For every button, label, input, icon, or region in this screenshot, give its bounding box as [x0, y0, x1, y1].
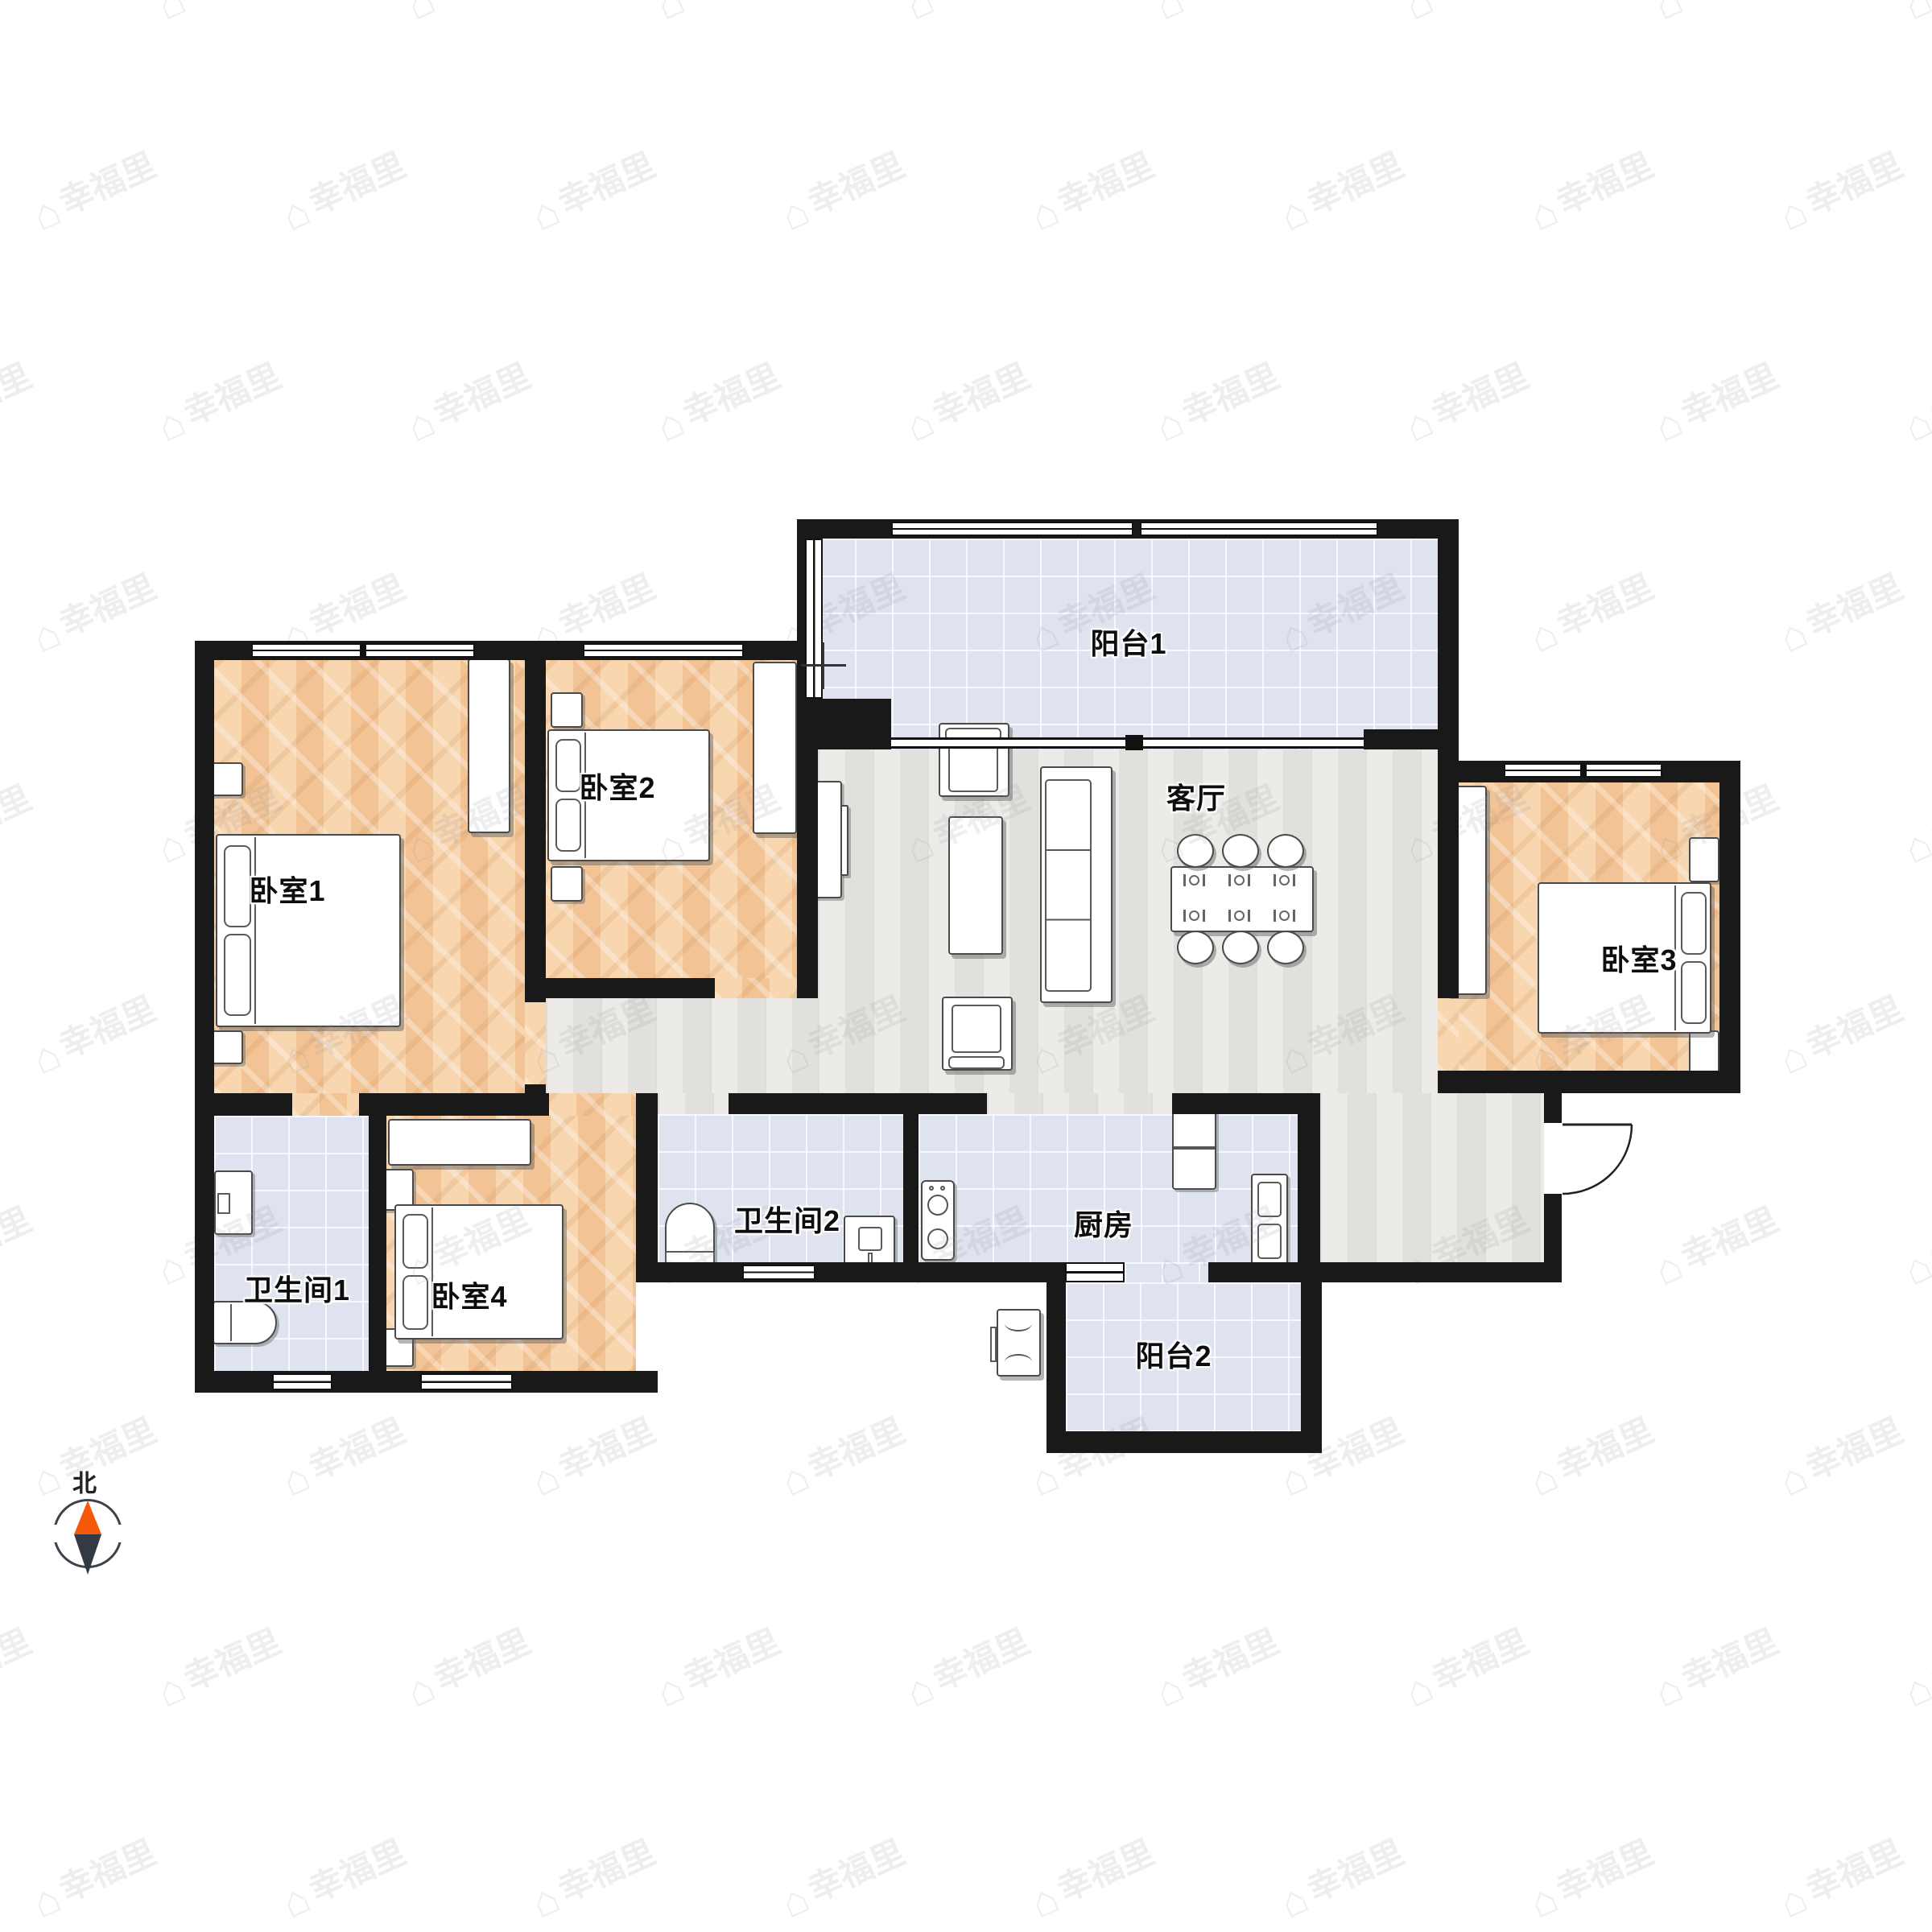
house-icon: ⌂ — [151, 1664, 192, 1717]
house-icon: ⌂ — [1149, 0, 1191, 29]
compass: 北 — [32, 1463, 145, 1584]
watermark-item: ⌂幸福里 — [1021, 1826, 1163, 1929]
compass-needle-north — [74, 1501, 101, 1534]
pillow — [1681, 961, 1707, 1024]
house-icon: ⌂ — [525, 1453, 567, 1506]
place-setting — [1228, 874, 1250, 886]
bedroom4-wardrobe — [388, 1119, 531, 1166]
bathroom1-door-threshold — [292, 1093, 359, 1116]
pillow — [555, 799, 581, 852]
watermark-item: ⌂幸福里 — [0, 1615, 40, 1718]
balcony2-door-threshold — [1125, 1262, 1208, 1282]
watermark-item: ⌂幸福里 — [23, 1826, 165, 1929]
watermark-item: ⌂幸福里 — [147, 349, 290, 452]
house-icon: ⌂ — [1274, 188, 1315, 241]
wall-bath2-kitchen-divider — [903, 1114, 919, 1262]
hall-west-floor — [546, 998, 818, 1093]
watermark-item: ⌂幸福里 — [1645, 1615, 1787, 1718]
sink-basin — [858, 1227, 882, 1251]
wall-kitchen-top-east — [1172, 1093, 1320, 1114]
room-label-balcony1: 阳台1 — [1090, 621, 1166, 663]
house-icon: ⌂ — [400, 0, 442, 29]
bedroom4-door-threshold — [549, 1093, 642, 1116]
house-icon: ⌂ — [1398, 398, 1440, 452]
watermark-item: ⌂幸福里 — [1395, 0, 1538, 30]
watermark-item: ⌂幸福里 — [646, 1615, 789, 1718]
watermark-item: ⌂幸福里 — [771, 1826, 914, 1929]
wall-outer-left — [195, 641, 214, 1393]
watermark-item: ⌂幸福里 — [1270, 138, 1413, 242]
house-icon: ⌂ — [275, 188, 317, 241]
dining-chair — [1222, 931, 1259, 964]
kitchen-balcony2-window — [1065, 1262, 1125, 1282]
place-setting — [1183, 910, 1205, 922]
bedroom3-window — [1504, 763, 1662, 778]
house-icon: ⌂ — [774, 188, 816, 241]
watermark-item: ⌂幸福里 — [646, 349, 789, 452]
house-icon: ⌂ — [1648, 1664, 1690, 1717]
stove-knob — [940, 1186, 945, 1191]
watermark-item: ⌂幸福里 — [771, 1404, 914, 1507]
stove-burner — [927, 1228, 948, 1249]
watermark-item: ⌂幸福里 — [1270, 1826, 1413, 1929]
bathroom1-sink — [214, 1170, 253, 1235]
house-icon: ⌂ — [1523, 1875, 1565, 1928]
dining-chair — [1222, 834, 1259, 868]
kitchen-fridge — [1172, 1106, 1216, 1190]
watermark-item: ⌂幸福里 — [147, 1615, 290, 1718]
bedroom2-nightstand-bottom — [551, 866, 583, 902]
sofa — [1040, 766, 1113, 1003]
watermark-item: ⌂幸福里 — [1769, 560, 1912, 663]
watermark-item: ⌂幸福里 — [1395, 1615, 1538, 1718]
watermark-item: ⌂幸福里 — [1769, 1826, 1912, 1929]
wall-balcony2-bottom — [1046, 1431, 1322, 1453]
wall-south-hall — [1301, 1262, 1562, 1282]
bedroom2-wardrobe — [753, 662, 797, 834]
toilet-tank-line — [230, 1304, 232, 1341]
bedroom1-nightstand-bottom — [209, 1030, 243, 1064]
house-icon: ⌂ — [26, 1875, 68, 1928]
stove-knob — [929, 1186, 934, 1191]
wall-bedroom4-top — [359, 1093, 549, 1116]
wall-bath1-top-left — [195, 1093, 292, 1116]
dining-chair — [1267, 931, 1304, 964]
place-setting — [1274, 874, 1295, 886]
place-setting — [1183, 874, 1205, 886]
kitchen-entry-threshold — [987, 1093, 1172, 1114]
house-icon: ⌂ — [275, 1453, 317, 1506]
pillow — [224, 934, 251, 1016]
watermark-item: ⌂幸福里 — [23, 982, 165, 1085]
stove-burner — [927, 1195, 948, 1216]
washing-machine-curve — [1005, 1354, 1032, 1370]
watermark-item: ⌂幸福里 — [1520, 1826, 1662, 1929]
bathroom2-toilet — [665, 1203, 715, 1265]
house-icon: ⌂ — [899, 398, 941, 452]
kitchen-stove — [921, 1180, 955, 1261]
house-icon: ⌂ — [1897, 0, 1932, 29]
watermark-item: ⌂幸福里 — [1645, 349, 1787, 452]
house-icon: ⌂ — [1274, 1875, 1315, 1928]
watermark-item: ⌂幸福里 — [1769, 1404, 1912, 1507]
bedroom1-nightstand-top — [209, 762, 243, 796]
armchair-seat — [948, 744, 998, 792]
wall-entry-stub-bottom — [1544, 1194, 1562, 1282]
room-label-bedroom4: 卧室4 — [431, 1274, 507, 1315]
bedroom1-bed — [216, 834, 401, 1027]
house-icon: ⌂ — [275, 1875, 317, 1928]
dining-table — [1170, 866, 1314, 932]
watermark-item: ⌂幸福里 — [23, 560, 165, 663]
house-icon: ⌂ — [1648, 1242, 1690, 1295]
house-icon: ⌂ — [774, 1875, 816, 1928]
wall-balcony2-right — [1301, 1282, 1322, 1453]
house-icon: ⌂ — [26, 188, 68, 241]
watermark-item: ⌂幸福里 — [1520, 560, 1662, 663]
house-icon: ⌂ — [151, 398, 192, 452]
house-icon: ⌂ — [525, 1875, 567, 1928]
house-icon: ⌂ — [1648, 0, 1690, 29]
entry-door — [1560, 1119, 1639, 1198]
dining-chair — [1267, 834, 1304, 868]
wall-bedroom3-bottom — [1438, 1071, 1740, 1093]
watermark-item: ⌂幸福里 — [771, 138, 914, 242]
watermark-item: ⌂幸福里 — [522, 138, 664, 242]
pillow — [555, 739, 581, 792]
compass-north-label: 北 — [72, 1463, 97, 1499]
house-icon: ⌂ — [1897, 398, 1932, 452]
watermark-item: ⌂幸福里 — [1146, 349, 1288, 452]
watermark-item: ⌂幸福里 — [1520, 138, 1662, 242]
place-setting — [1228, 910, 1250, 922]
wall-balcony2-left — [1046, 1282, 1066, 1431]
room-label-living: 客厅 — [1166, 775, 1226, 817]
watermark-item: ⌂幸福里 — [1146, 1615, 1288, 1718]
house-icon: ⌂ — [1897, 1664, 1932, 1717]
armchair-bottom — [942, 997, 1013, 1071]
house-icon: ⌂ — [400, 398, 442, 452]
house-icon: ⌂ — [1398, 1664, 1440, 1717]
bed-headboard-line — [431, 1207, 433, 1336]
bedroom4-window — [420, 1373, 513, 1390]
room-label-bedroom1: 卧室1 — [249, 868, 325, 910]
washing-machine — [997, 1309, 1041, 1377]
watermark-item: ⌂幸福里 — [1769, 138, 1912, 242]
pillow — [402, 1275, 428, 1330]
house-icon: ⌂ — [1149, 398, 1191, 452]
wall-bath1-bedroom4-divider — [369, 1116, 386, 1371]
watermark-item: ⌂幸福里 — [896, 349, 1038, 452]
wall-entry-stub-top — [1544, 1093, 1562, 1123]
house-icon: ⌂ — [774, 1453, 816, 1506]
wall-bedroom2-right — [797, 660, 818, 998]
watermark-item: ⌂幸福里 — [1894, 0, 1932, 30]
house-icon: ⌂ — [1773, 188, 1814, 241]
bedroom3-nightstand-top — [1689, 837, 1719, 882]
watermark-item: ⌂幸福里 — [397, 0, 539, 30]
coffee-table — [948, 816, 1003, 955]
wall-balcony1-pier-se — [1364, 729, 1438, 749]
wall-bath2-kitchen-top — [729, 1093, 987, 1114]
watermark-item: ⌂幸福里 — [147, 0, 290, 30]
house-icon: ⌂ — [1773, 1875, 1814, 1928]
watermark-item: ⌂幸福里 — [272, 1826, 415, 1929]
armchair-seat — [952, 1005, 1001, 1053]
house-icon: ⌂ — [650, 1664, 691, 1717]
watermark-item: ⌂幸福里 — [646, 0, 789, 30]
floorplan-canvas: ⌂幸福里⌂幸福里⌂幸福里⌂幸福里⌂幸福里⌂幸福里⌂幸福里⌂幸福里⌂幸福里⌂幸福里… — [0, 0, 1932, 1932]
house-icon: ⌂ — [26, 609, 68, 663]
bathroom2-window — [742, 1265, 815, 1280]
house-icon: ⌂ — [1149, 1664, 1191, 1717]
compass-ring-gap — [48, 1525, 58, 1542]
watermark-item: ⌂幸福里 — [1645, 1193, 1787, 1296]
house-icon: ⌂ — [1024, 1453, 1066, 1506]
wall-balcony1-right — [1438, 519, 1459, 782]
house-icon: ⌂ — [1773, 609, 1814, 663]
watermark-item: ⌂幸福里 — [1894, 1615, 1932, 1718]
house-icon: ⌂ — [1523, 609, 1565, 663]
house-icon: ⌂ — [26, 1031, 68, 1084]
house-icon: ⌂ — [899, 0, 941, 29]
bedroom1-wardrobe — [468, 658, 510, 833]
sofa-seats — [1045, 779, 1092, 992]
washing-machine-tab — [990, 1327, 997, 1362]
wall-balcony1-pier-sw — [805, 699, 891, 749]
bathroom1-window — [272, 1373, 332, 1390]
watermark-item: ⌂幸福里 — [1769, 982, 1912, 1085]
wall-bedroom4-right — [636, 1093, 658, 1282]
pillow — [1681, 892, 1707, 955]
watermark-item: ⌂幸福里 — [1894, 1193, 1932, 1296]
bedroom1-door-threshold — [525, 1002, 546, 1084]
house-icon: ⌂ — [1897, 1242, 1932, 1295]
house-icon: ⌂ — [1274, 1453, 1315, 1506]
room-label-balcony2: 阳台2 — [1135, 1333, 1212, 1375]
wall-south-bath2-kitchen — [644, 1262, 1065, 1282]
house-icon: ⌂ — [1773, 1453, 1814, 1506]
bedroom4-bed — [394, 1204, 563, 1340]
watermark-item: ⌂幸福里 — [0, 349, 40, 452]
house-icon: ⌂ — [1773, 1031, 1814, 1084]
bedroom3-nightstand-bottom — [1689, 1030, 1719, 1075]
house-icon: ⌂ — [525, 188, 567, 241]
house-icon: ⌂ — [1398, 0, 1440, 29]
watermark-item: ⌂幸福里 — [1894, 349, 1932, 452]
house-icon: ⌂ — [1523, 188, 1565, 241]
sink-basin — [1257, 1224, 1282, 1259]
balcony1-window-left — [891, 522, 1133, 536]
watermark-item: ⌂幸福里 — [0, 771, 40, 874]
livingroom-floor — [818, 749, 1438, 1093]
bedroom1-window — [251, 643, 475, 658]
house-icon: ⌂ — [400, 1664, 442, 1717]
watermark-item: ⌂幸福里 — [522, 1404, 664, 1507]
watermark-item: ⌂幸福里 — [522, 1826, 664, 1929]
watermark-item: ⌂幸福里 — [23, 138, 165, 242]
tv-screen — [840, 805, 848, 876]
bathroom2-door-threshold — [658, 1093, 729, 1114]
balcony1-window-right — [1140, 522, 1378, 536]
watermark-item: ⌂幸福里 — [0, 1193, 40, 1296]
watermark-item: ⌂幸福里 — [1645, 0, 1787, 30]
room-label-kitchen: 厨房 — [1074, 1202, 1133, 1244]
house-icon: ⌂ — [1024, 1875, 1066, 1928]
sink-basin — [1257, 1182, 1282, 1217]
window-mullion — [360, 643, 366, 658]
house-icon: ⌂ — [650, 398, 691, 452]
watermark-item: ⌂幸福里 — [272, 1404, 415, 1507]
sliding-door-tick — [1125, 735, 1143, 750]
place-setting — [1274, 910, 1295, 922]
room-label-bathroom1: 卫生间1 — [244, 1267, 350, 1309]
sink-tap — [217, 1193, 230, 1214]
pillow — [224, 845, 251, 927]
house-icon: ⌂ — [899, 1664, 941, 1717]
wall-bedroom3-right — [1719, 761, 1740, 1093]
dining-chair — [1177, 931, 1214, 964]
armchair-back — [948, 1056, 1005, 1069]
house-icon: ⌂ — [1897, 820, 1932, 873]
watermark-item: ⌂幸福里 — [272, 138, 415, 242]
compass-needle-south — [74, 1534, 101, 1575]
room-label-bedroom2: 卧室2 — [579, 765, 655, 807]
watermark-item: ⌂幸福里 — [896, 0, 1038, 30]
wall-bedroom1-right — [525, 660, 546, 1002]
watermark-item: ⌂幸福里 — [1395, 349, 1538, 452]
armchair-top — [939, 723, 1009, 797]
house-icon: ⌂ — [1024, 188, 1066, 241]
watermark-item: ⌂幸福里 — [1021, 138, 1163, 242]
house-icon: ⌂ — [151, 820, 192, 873]
dining-chair — [1177, 834, 1214, 868]
pillow — [402, 1214, 428, 1269]
washing-machine-curve — [1005, 1315, 1032, 1331]
house-icon: ⌂ — [1648, 398, 1690, 452]
balcony1-side-window — [805, 539, 823, 699]
bedroom2-door-threshold — [715, 978, 796, 998]
watermark-item: ⌂幸福里 — [397, 1615, 539, 1718]
house-icon: ⌂ — [151, 1242, 192, 1295]
hall-east-floor — [1320, 1093, 1544, 1262]
bathroom2-sink — [844, 1216, 895, 1265]
watermark-item: ⌂幸福里 — [397, 349, 539, 452]
window-mullion — [1580, 763, 1587, 778]
watermark-item: ⌂幸福里 — [1520, 1404, 1662, 1507]
watermark-item: ⌂幸福里 — [896, 1615, 1038, 1718]
wall-bedroom3-left-upper — [1438, 761, 1459, 998]
bedroom3-door-threshold — [1438, 998, 1459, 1071]
wall-south-kitchen-east — [1208, 1262, 1301, 1282]
room-label-bedroom3: 卧室3 — [1600, 937, 1677, 979]
bed-headboard-line — [254, 837, 256, 1024]
bedroom2-window — [583, 643, 744, 658]
shaft-cross-marker — [801, 664, 846, 667]
kitchen-sink-unit — [1251, 1174, 1288, 1265]
house-icon: ⌂ — [151, 0, 192, 29]
room-label-bathroom2: 卫生间2 — [734, 1198, 840, 1240]
compass-ring-gap — [118, 1525, 127, 1542]
bedroom2-nightstand-top — [551, 692, 583, 728]
wall-kitchen-hall-divider — [1298, 1114, 1320, 1262]
wall-bedroom2-bottom — [530, 978, 715, 998]
house-icon: ⌂ — [650, 0, 691, 29]
watermark-item: ⌂幸福里 — [0, 0, 40, 30]
watermark-item: ⌂幸福里 — [1146, 0, 1288, 30]
house-icon: ⌂ — [1523, 1453, 1565, 1506]
watermark-item: ⌂幸福里 — [1894, 771, 1932, 874]
